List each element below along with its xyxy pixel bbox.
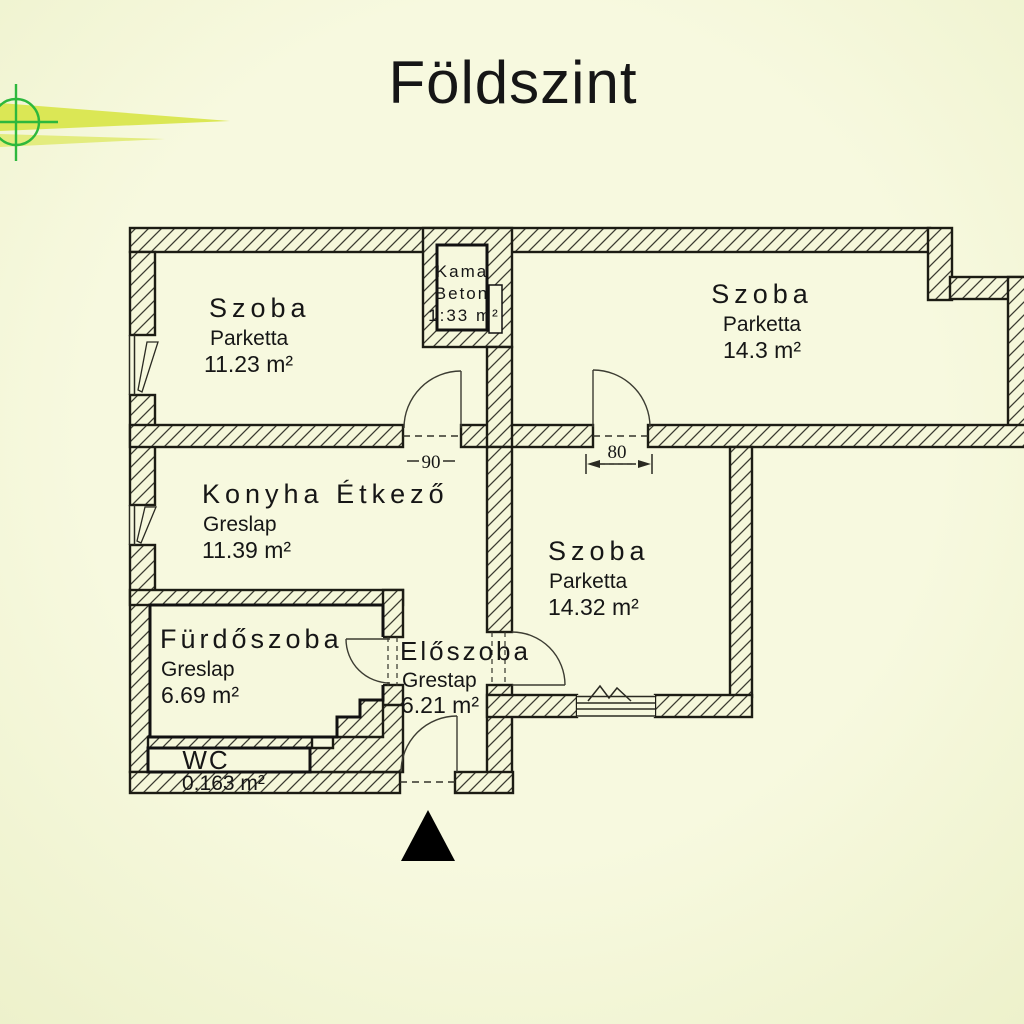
room-area: 14.3 m² [723,337,801,363]
dimension-80: 80 [586,442,652,474]
logo-crosshair-icon [0,84,230,161]
room-floor: Parketta [549,570,628,593]
page-title: Földszint [388,49,637,116]
north-arrow-icon [401,810,455,861]
room-floor: Parketta [210,327,289,350]
room-floor: Parketta [723,313,802,336]
floorplan-svg: Földszint [0,0,1024,1024]
room-area: 6.21 m² [401,692,479,718]
label-szoba-top-left: Szoba Parketta 11.23 m² [204,293,311,377]
room-area: 0.163 m² [182,772,265,795]
door-entrance-icon [400,716,457,782]
room-name: Fürdőszoba [160,624,343,654]
floorplan-canvas: Földszint [0,0,1024,1024]
window-szoba-middle-icon [577,686,655,717]
room-name: WC [182,745,229,775]
label-szoba-top-right: Szoba Parketta 14.3 m² [711,279,813,363]
room-area: 11.39 m² [202,537,291,563]
dimension-90: 90 [407,452,455,473]
room-name: Szoba [209,293,311,323]
room-floor: Beton [435,284,489,303]
room-floor: Greslap [161,658,235,681]
room-name: Szoba [711,279,813,309]
room-area: 1:33 m² [428,306,500,325]
door-szoba-tr-icon [593,370,650,436]
label-konyha-etkezo: Konyha Étkező Greslap 11.39 m² [202,479,449,563]
dimension-90-label: 90 [422,452,441,473]
room-area: 14.32 m² [548,594,639,620]
room-floor: Grestap [402,669,477,692]
room-name: Szoba [548,536,650,566]
label-szoba-middle: Szoba Parketta 14.32 m² [548,536,650,620]
room-floor: Greslap [203,513,277,536]
room-name: Előszoba [400,636,531,666]
window-konyha-left-icon [130,505,157,545]
room-area: 6.69 m² [161,682,239,708]
room-name: Konyha Étkező [202,479,449,509]
room-name: Kama [436,262,488,281]
dimension-80-label: 80 [608,442,627,463]
window-szoba-left-icon [130,335,159,395]
door-szoba-tl-icon [403,371,461,436]
room-area: 11.23 m² [204,351,293,377]
